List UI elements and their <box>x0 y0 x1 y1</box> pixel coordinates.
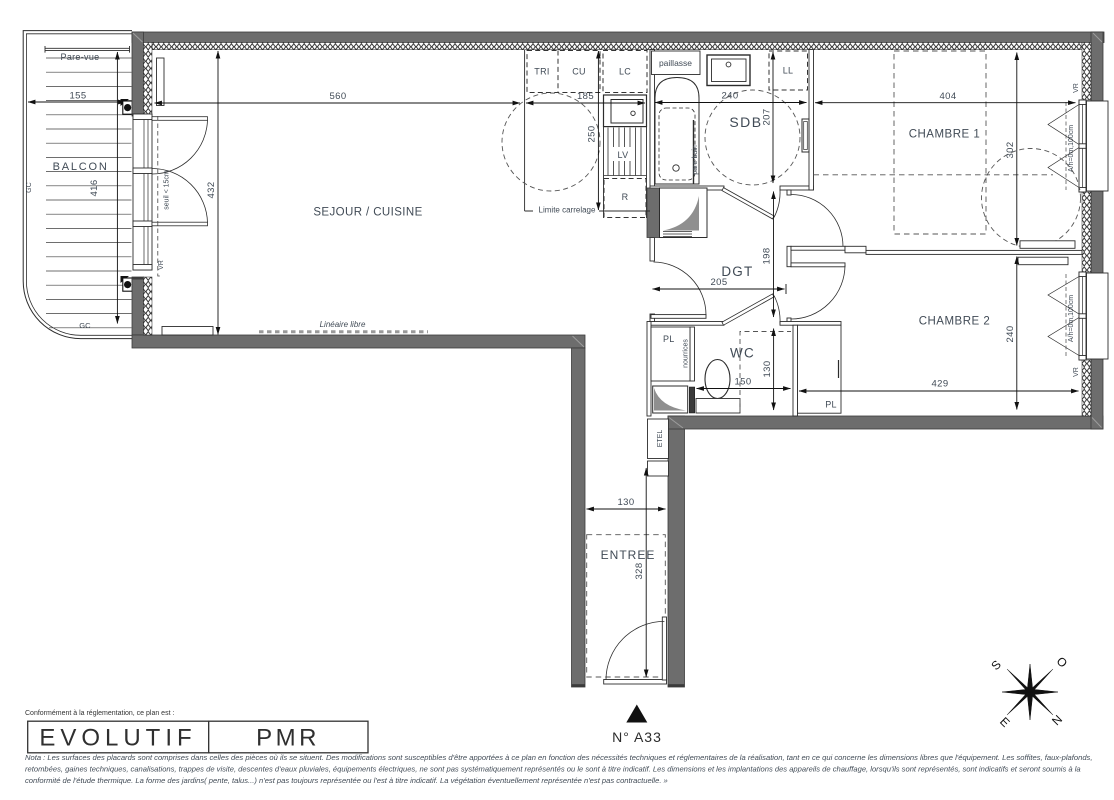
svg-text:Conformément à la réglementati: Conformément à la réglementation, ce pla… <box>25 710 174 717</box>
svg-text:185: 185 <box>577 91 594 102</box>
svg-text:WC: WC <box>730 346 755 361</box>
svg-text:240: 240 <box>1005 325 1016 342</box>
svg-text:198: 198 <box>762 247 773 264</box>
svg-text:432: 432 <box>206 181 217 198</box>
svg-text:TRI: TRI <box>534 67 549 77</box>
svg-text:130: 130 <box>617 497 634 508</box>
svg-text:paillasse: paillasse <box>659 58 692 68</box>
svg-text:CHAMBRE 1: CHAMBRE 1 <box>909 129 981 141</box>
svg-text:GC: GC <box>79 321 91 330</box>
svg-text:207: 207 <box>762 108 773 125</box>
svg-text:VR: VR <box>1073 83 1080 93</box>
svg-text:N: N <box>1049 712 1065 728</box>
svg-text:BALCON: BALCON <box>53 161 109 173</box>
svg-text:O: O <box>1054 654 1071 671</box>
svg-text:PMR: PMR <box>256 725 320 752</box>
svg-text:LV: LV <box>618 150 629 160</box>
svg-text:conformité de l'étude thermiqu: conformité de l'étude thermique. La form… <box>25 776 668 785</box>
svg-text:Pare-vue: Pare-vue <box>61 52 100 62</box>
svg-text:ETEL: ETEL <box>657 430 664 448</box>
svg-text:E: E <box>997 714 1013 730</box>
svg-text:S: S <box>988 657 1004 673</box>
svg-text:SDB: SDB <box>729 114 762 130</box>
svg-text:N° A33: N° A33 <box>612 729 662 745</box>
svg-text:250: 250 <box>587 125 598 142</box>
svg-text:R: R <box>622 192 629 202</box>
svg-text:LL: LL <box>783 66 794 76</box>
svg-text:LC: LC <box>619 67 631 77</box>
svg-text:VR: VR <box>1073 367 1080 377</box>
svg-text:A/h=0m,100cm: A/h=0m,100cm <box>1068 295 1075 342</box>
svg-text:Limite carrelage: Limite carrelage <box>539 206 596 215</box>
svg-text:240: 240 <box>721 91 738 102</box>
svg-text:EVOLUTIF: EVOLUTIF <box>39 725 196 752</box>
svg-text:Linéaire libre: Linéaire libre <box>320 320 366 329</box>
svg-text:VR: VR <box>158 260 165 270</box>
svg-text:GC: GC <box>26 182 33 193</box>
svg-text:155: 155 <box>69 91 86 102</box>
svg-text:CHAMBRE 2: CHAMBRE 2 <box>919 316 991 328</box>
svg-text:302: 302 <box>1005 141 1016 158</box>
svg-text:404: 404 <box>939 91 956 102</box>
svg-text:nourrices: nourrices <box>683 339 690 368</box>
svg-text:A/h=0m,100cm: A/h=0m,100cm <box>1068 125 1075 172</box>
svg-text:130: 130 <box>762 360 773 377</box>
svg-text:429: 429 <box>931 379 948 390</box>
svg-text:seuil < 15cm: seuil < 15cm <box>164 170 171 210</box>
svg-text:CU: CU <box>572 67 586 77</box>
svg-text:150: 150 <box>734 377 751 388</box>
svg-text:Nota : Les surfaces des placar: Nota : Les surfaces des placards sont co… <box>25 753 1092 762</box>
svg-text:pare-bain: pare-bain <box>692 145 699 175</box>
svg-text:PL: PL <box>825 400 837 410</box>
svg-text:PL: PL <box>663 334 675 344</box>
svg-text:560: 560 <box>329 91 346 102</box>
svg-text:ENTREE: ENTREE <box>601 548 656 562</box>
svg-text:SEJOUR / CUISINE: SEJOUR / CUISINE <box>313 207 422 219</box>
svg-text:205: 205 <box>710 277 727 288</box>
svg-text:328: 328 <box>634 562 645 579</box>
svg-text:416: 416 <box>89 179 100 196</box>
svg-text:retombées, gaines techniques,: retombées, gaines techniques, canalisati… <box>25 765 1081 774</box>
